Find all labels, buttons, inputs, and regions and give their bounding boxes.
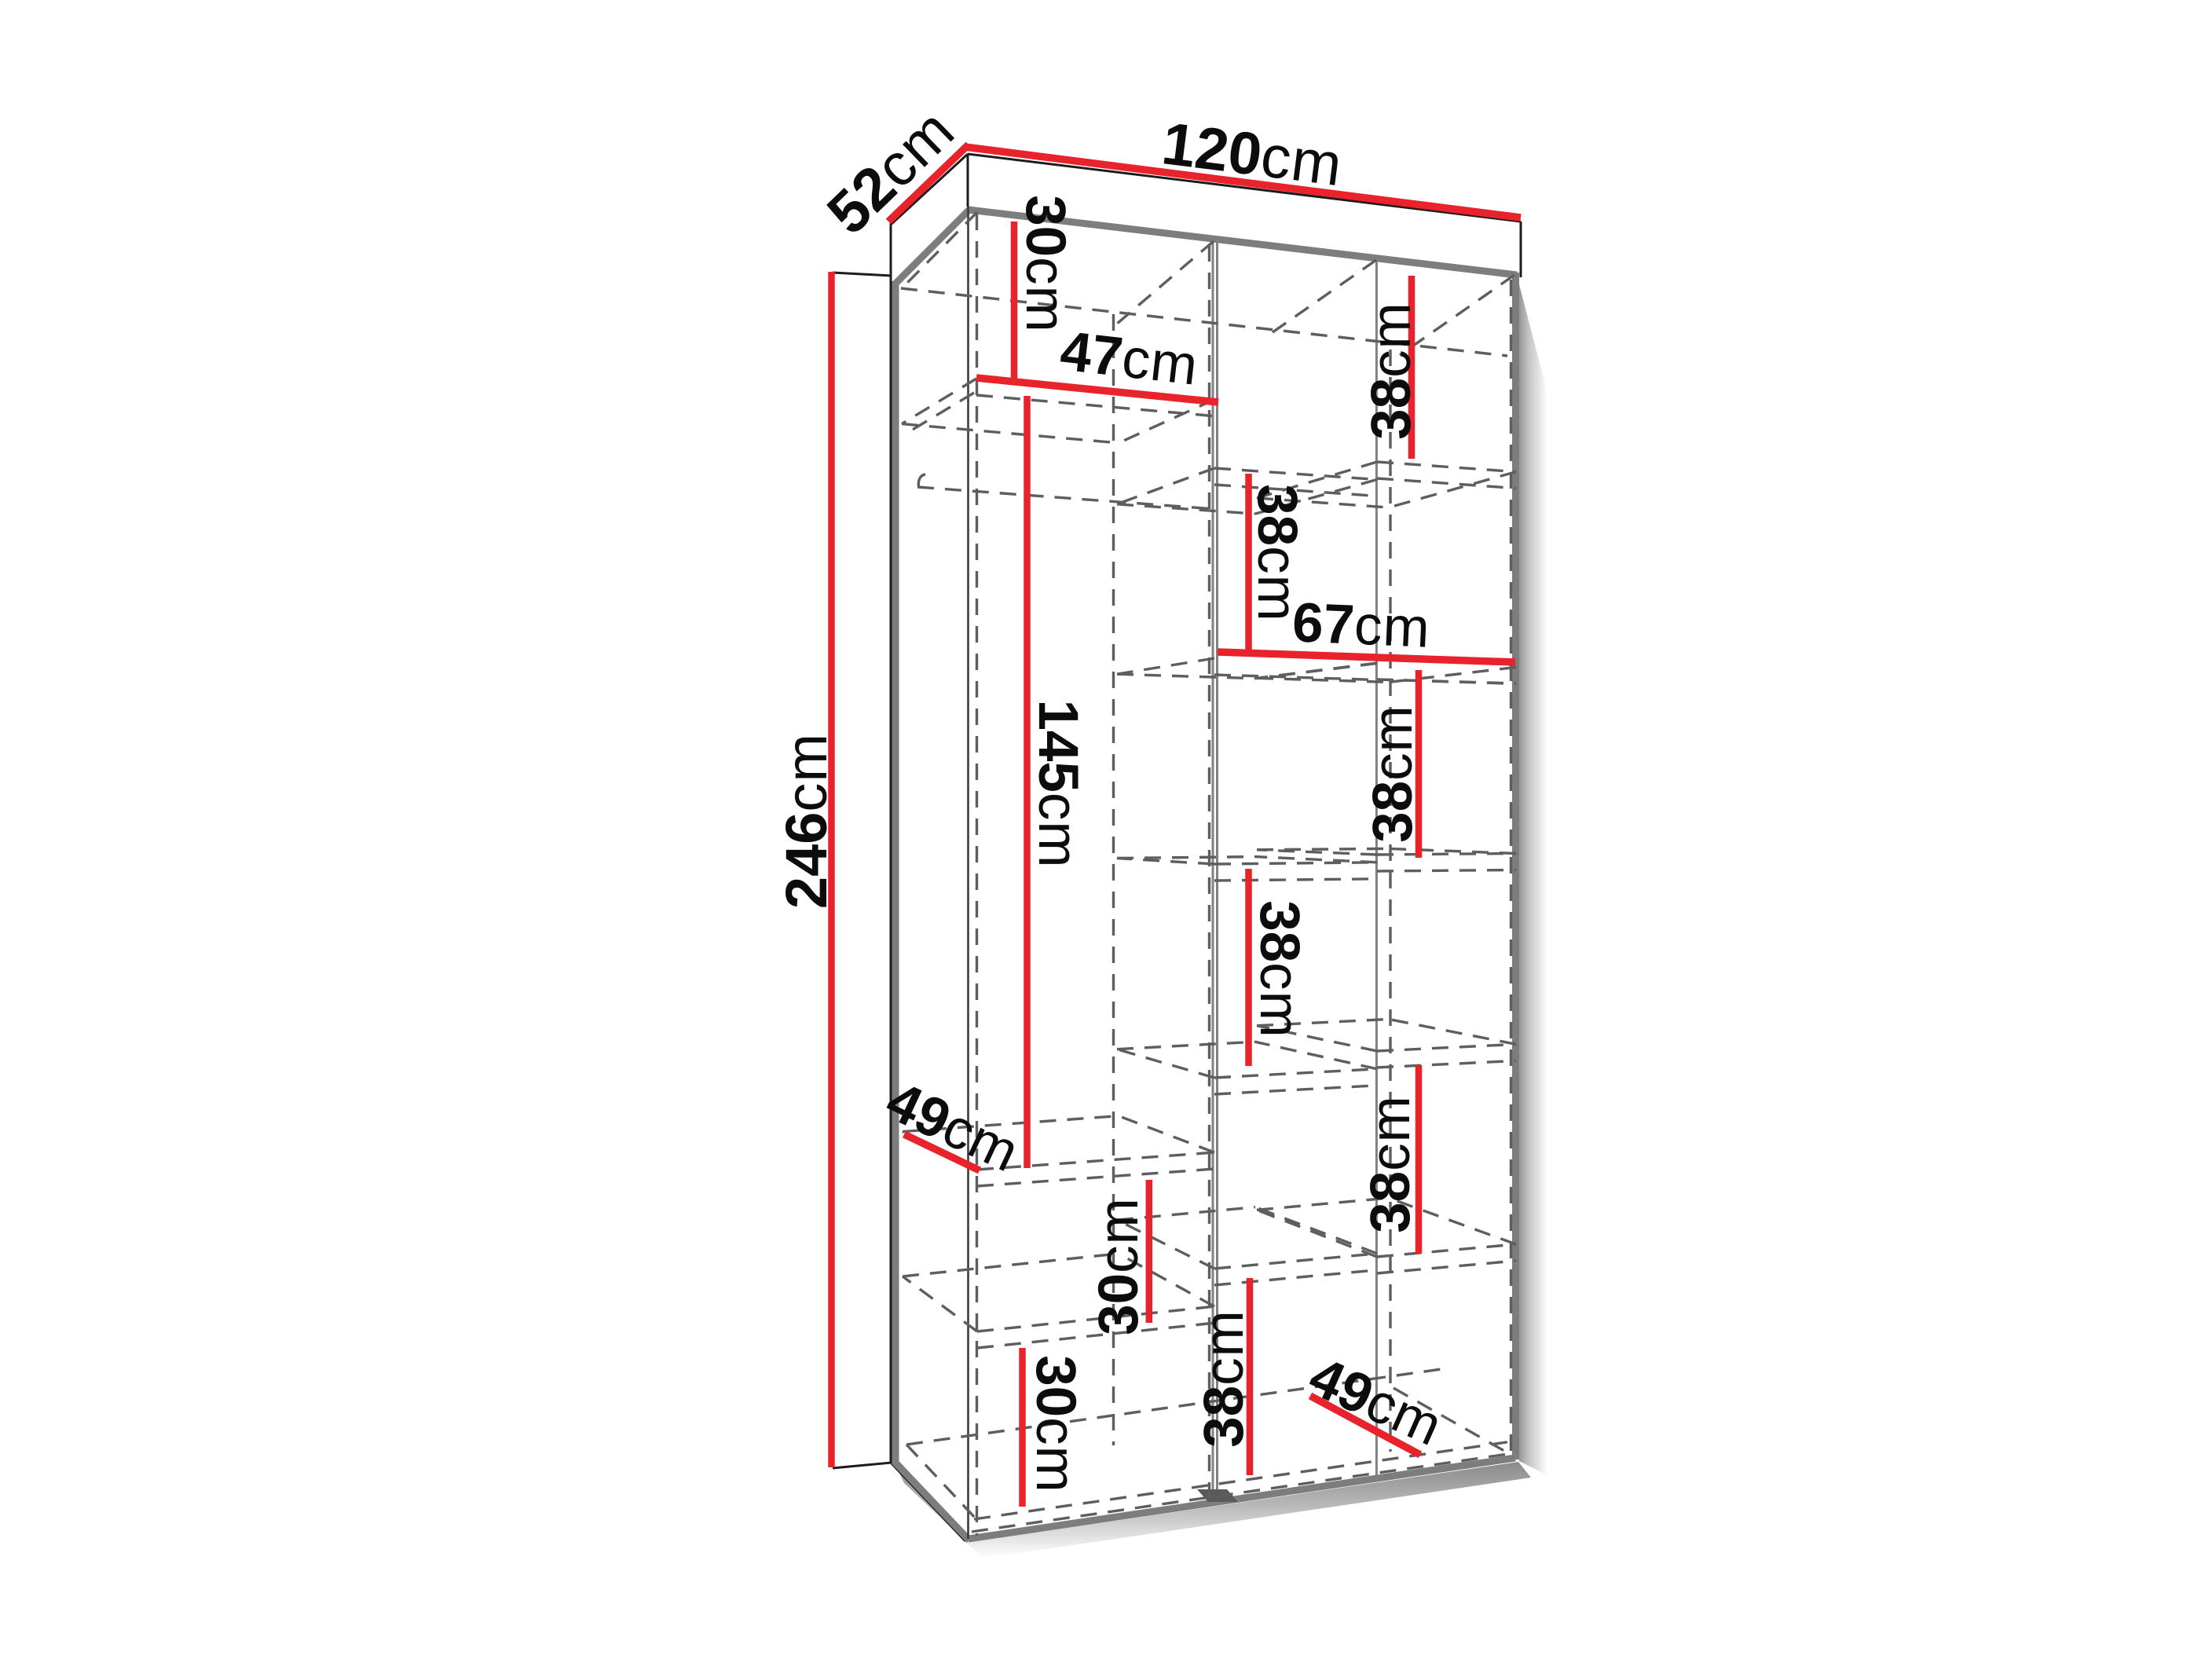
svg-text:67cm: 67cm bbox=[1291, 591, 1432, 660]
svg-text:38cm: 38cm bbox=[1361, 302, 1423, 440]
svg-text:38cm: 38cm bbox=[1193, 1309, 1255, 1448]
svg-text:30cm: 30cm bbox=[1014, 195, 1076, 333]
svg-text:30cm: 30cm bbox=[1024, 1355, 1086, 1493]
svg-text:38cm: 38cm bbox=[1360, 1095, 1422, 1233]
svg-text:246cm: 246cm bbox=[774, 733, 839, 909]
svg-text:38cm: 38cm bbox=[1248, 900, 1310, 1038]
svg-text:30cm: 30cm bbox=[1088, 1197, 1150, 1335]
svg-text:145cm: 145cm bbox=[1027, 699, 1089, 868]
svg-text:38cm: 38cm bbox=[1362, 705, 1424, 843]
